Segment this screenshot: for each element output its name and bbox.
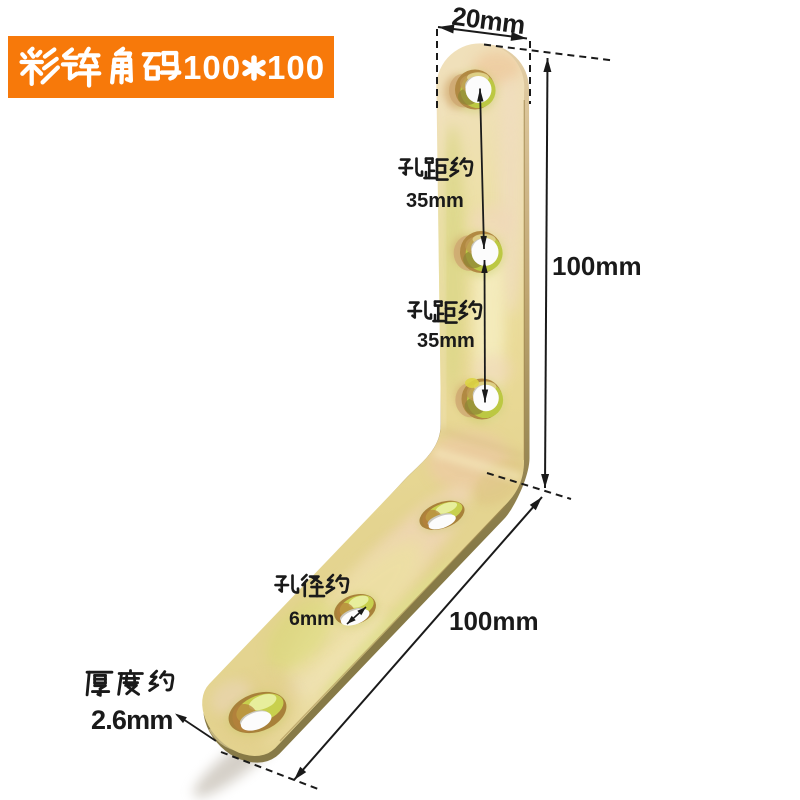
svg-text:100: 100 <box>183 49 241 86</box>
svg-text:35mm: 35mm <box>417 330 475 352</box>
svg-text:100: 100 <box>267 49 325 86</box>
svg-text:100mm: 100mm <box>552 251 642 281</box>
svg-text:100mm: 100mm <box>449 606 539 636</box>
svg-text:35mm: 35mm <box>406 190 464 212</box>
svg-text:2.6mm: 2.6mm <box>91 705 173 735</box>
svg-text:6mm: 6mm <box>289 608 335 630</box>
